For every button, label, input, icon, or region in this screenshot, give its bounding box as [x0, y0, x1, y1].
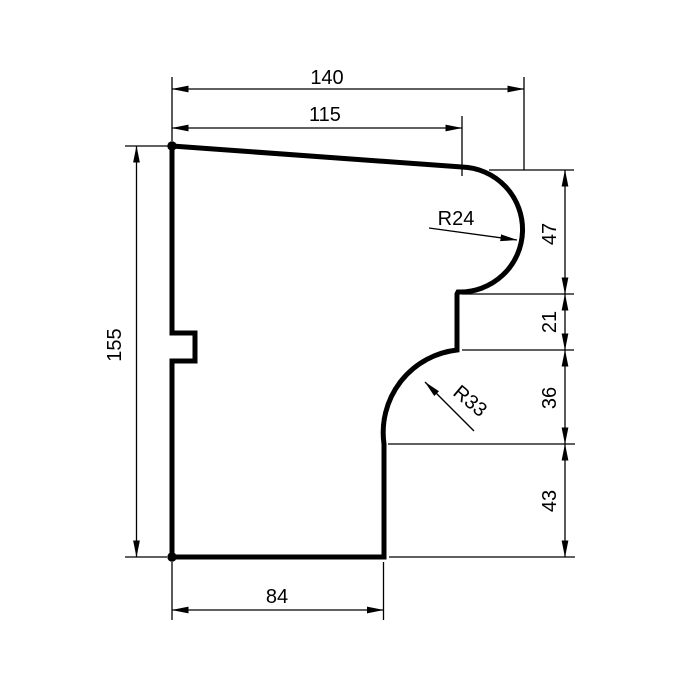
dim-label-step-height: 21 — [539, 311, 561, 333]
dim-label-bullnose-height: 47 — [539, 223, 561, 245]
radius-label-cove: R33 — [449, 381, 491, 421]
radius-label-bullnose: R24 — [438, 208, 475, 230]
dim-label-cove-height: 36 — [539, 387, 561, 409]
profile-dimension-drawing: 140 115 155 84 47 21 36 43 R24 R33 — [0, 0, 686, 686]
dim-label-upper-width: 115 — [309, 104, 341, 126]
dim-label-base-height: 43 — [539, 490, 561, 512]
dim-label-total-height: 155 — [104, 328, 126, 361]
dim-label-bottom-width: 84 — [266, 586, 288, 608]
corner-node-bottom-left — [167, 552, 176, 561]
corner-node-top-left — [167, 141, 176, 150]
dim-label-total-width: 140 — [310, 67, 343, 89]
technical-drawing-page: 140 115 155 84 47 21 36 43 R24 R33 — [0, 0, 686, 686]
